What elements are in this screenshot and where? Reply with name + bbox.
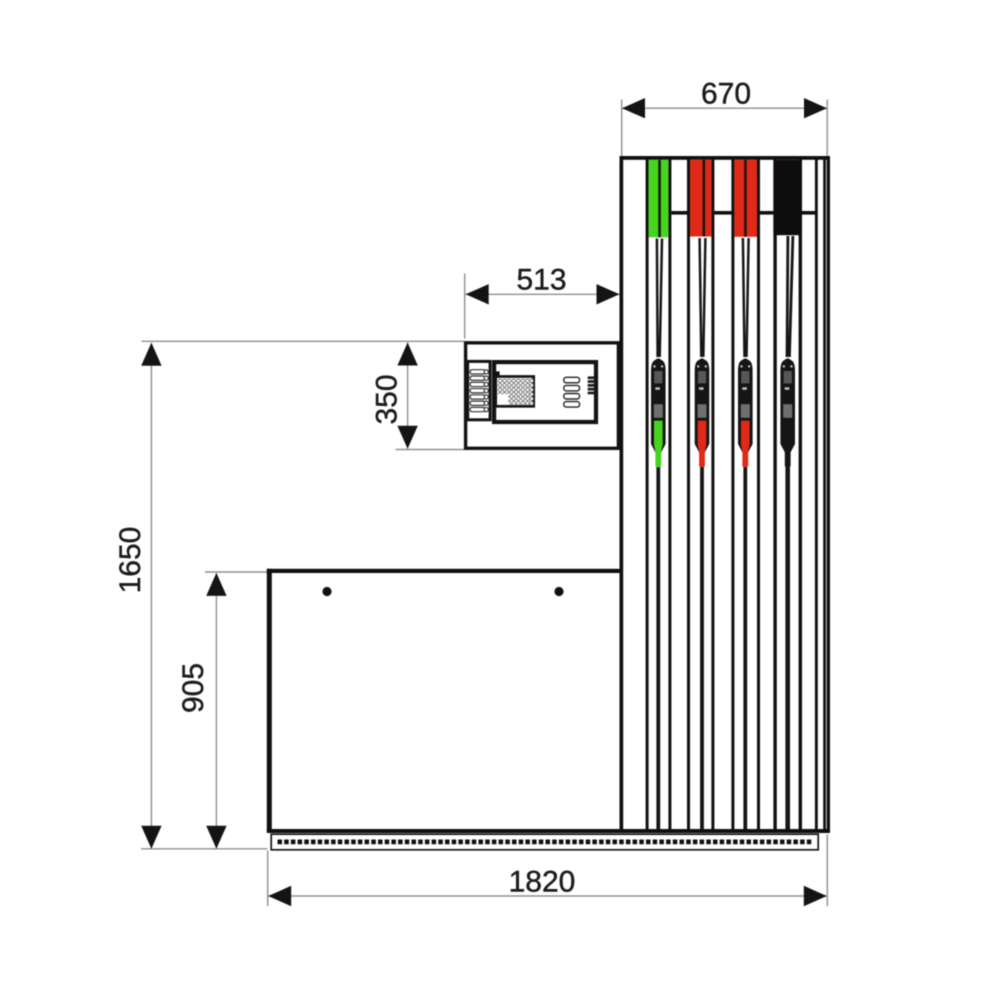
svg-text:350: 350 — [371, 374, 404, 424]
svg-text:670: 670 — [701, 78, 751, 111]
svg-text:513: 513 — [516, 264, 566, 297]
svg-text:1650: 1650 — [114, 527, 147, 594]
svg-text:1820: 1820 — [509, 866, 576, 899]
svg-text:905: 905 — [177, 663, 210, 713]
